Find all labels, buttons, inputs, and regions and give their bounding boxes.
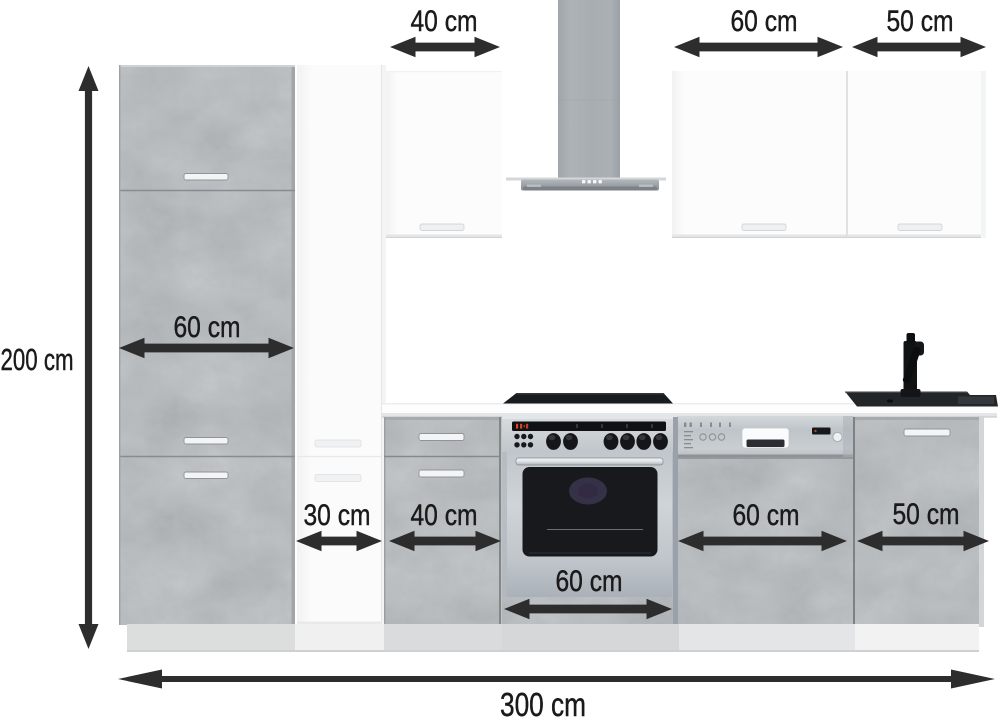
svg-text:30 cm: 30 cm xyxy=(304,499,371,532)
svg-text:50 cm: 50 cm xyxy=(887,5,954,38)
svg-text:40 cm: 40 cm xyxy=(411,5,478,38)
svg-text:50 cm: 50 cm xyxy=(893,498,960,531)
svg-text:300 cm: 300 cm xyxy=(500,686,586,719)
svg-text:60 cm: 60 cm xyxy=(733,499,800,532)
svg-text:60 cm: 60 cm xyxy=(556,565,623,598)
svg-text:60 cm: 60 cm xyxy=(174,311,241,344)
svg-text:40 cm: 40 cm xyxy=(411,499,478,532)
svg-text:200 cm: 200 cm xyxy=(1,342,74,377)
svg-text:60 cm: 60 cm xyxy=(731,5,798,38)
